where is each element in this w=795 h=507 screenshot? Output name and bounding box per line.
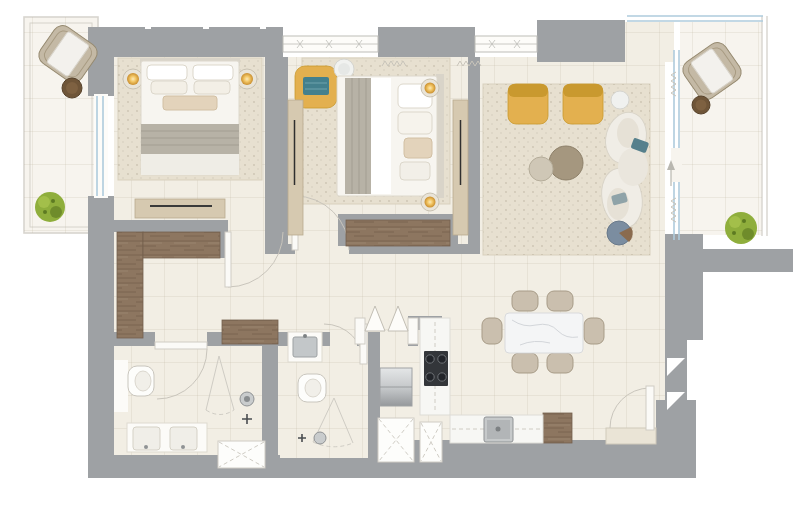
bed-1-duvet-foot (141, 154, 239, 175)
hall-closet-horizontal (143, 232, 220, 258)
terrace-side-table-top (696, 100, 707, 111)
toilet-2-bowl (305, 379, 321, 397)
floor-plan-svg (0, 0, 795, 507)
hall-closet-vertical (117, 232, 143, 338)
bed-1-throw-blanket (141, 124, 239, 154)
shower-head-center (244, 396, 250, 402)
shower-2-head (314, 432, 326, 444)
washbasin-faucet (303, 334, 307, 338)
bed-1-pillow (147, 65, 187, 80)
dining-chair (547, 353, 573, 373)
wall-entry-east (656, 400, 696, 460)
wall-terrace-south-band (689, 249, 793, 272)
sofa-section-middle (618, 148, 648, 186)
dining-chair (482, 318, 502, 344)
facade-tick-3 (260, 24, 266, 29)
bedroom-2-media-console (346, 220, 450, 246)
sink-faucet (496, 427, 501, 432)
kitchen-door-post-left (355, 318, 365, 344)
bedside-lamp-left (127, 73, 139, 85)
wall-bottom-center (280, 458, 380, 478)
toilet-backer (114, 360, 128, 412)
wardrobe-left (288, 100, 303, 235)
facade-tick-2 (203, 24, 209, 29)
burner (438, 355, 446, 363)
balcony-side-table-top (66, 82, 78, 94)
facade-tick-1 (145, 24, 151, 29)
entry-door-leaf (646, 386, 654, 430)
bedroom-1-door-leaf (225, 232, 231, 287)
wall-top-left (88, 27, 283, 57)
dining-chair (547, 291, 573, 311)
wall-bedroom2-living (468, 57, 480, 254)
bed-1 (140, 58, 240, 175)
wall-left-lower (88, 196, 114, 458)
hall-console-table (222, 320, 278, 344)
kitchen-door-post-right (408, 318, 418, 344)
plant-speckle (742, 219, 746, 223)
wall-between-bedrooms (265, 57, 288, 254)
plant-shadow (50, 206, 62, 218)
bed-2-accent-pillow (404, 138, 432, 158)
yellow-armchair-1-back (508, 84, 548, 97)
terrace-plant (725, 212, 757, 244)
balcony-plant (35, 192, 65, 222)
coffee-table-large (549, 146, 583, 180)
wall-top-pier-2 (378, 27, 475, 57)
bed-2-duvet-fold (371, 78, 391, 194)
living-side-table (611, 91, 629, 109)
plant-highlight (729, 216, 741, 228)
bedside-lamp-right (241, 73, 253, 85)
wall-bedroom1-south (105, 220, 228, 232)
plant-foliage (35, 192, 65, 222)
washbasin (293, 337, 317, 357)
toilet-bowl (135, 371, 151, 391)
plant-foliage (725, 212, 757, 244)
wall-top-pier-3 (537, 20, 625, 62)
bed-2-throw-blanket (345, 78, 371, 194)
burner (426, 355, 434, 363)
plant-shadow (742, 228, 754, 240)
round-side-table-top (338, 63, 350, 75)
bed-2-pillow (400, 162, 430, 180)
bed-1-pillow (193, 65, 233, 80)
master-bath-door-leaf (155, 342, 207, 349)
left-window-frame (94, 94, 108, 198)
plant-speckle (732, 231, 736, 235)
bedside-lamp-top (425, 83, 436, 94)
plant-speckle (43, 210, 47, 214)
vanity-faucet-left (144, 445, 148, 449)
bed-2-pillow (398, 112, 432, 134)
plant-highlight (38, 196, 50, 208)
bed-1-pillow (151, 81, 187, 94)
floor-plan-canvas (0, 0, 795, 507)
bedroom-1-dresser (135, 199, 225, 218)
coffee-table-small (529, 157, 553, 181)
dining-table-marble (505, 313, 583, 353)
yellow-armchair-2-back (563, 84, 603, 97)
plant-speckle (51, 199, 55, 203)
dining-chair (512, 291, 538, 311)
bedside-lamp-bottom (425, 197, 436, 208)
wall-between-baths (262, 332, 278, 458)
burner (438, 373, 446, 381)
teal-throw (303, 77, 329, 95)
vanity-faucet-right (181, 445, 185, 449)
kitchen-wood-cabinet (543, 413, 572, 443)
dining-chair (512, 353, 538, 373)
bed-1-pillow (194, 81, 230, 94)
burner (426, 373, 434, 381)
bed-1-accent-pillow (163, 96, 217, 110)
dining-chair (584, 318, 604, 344)
